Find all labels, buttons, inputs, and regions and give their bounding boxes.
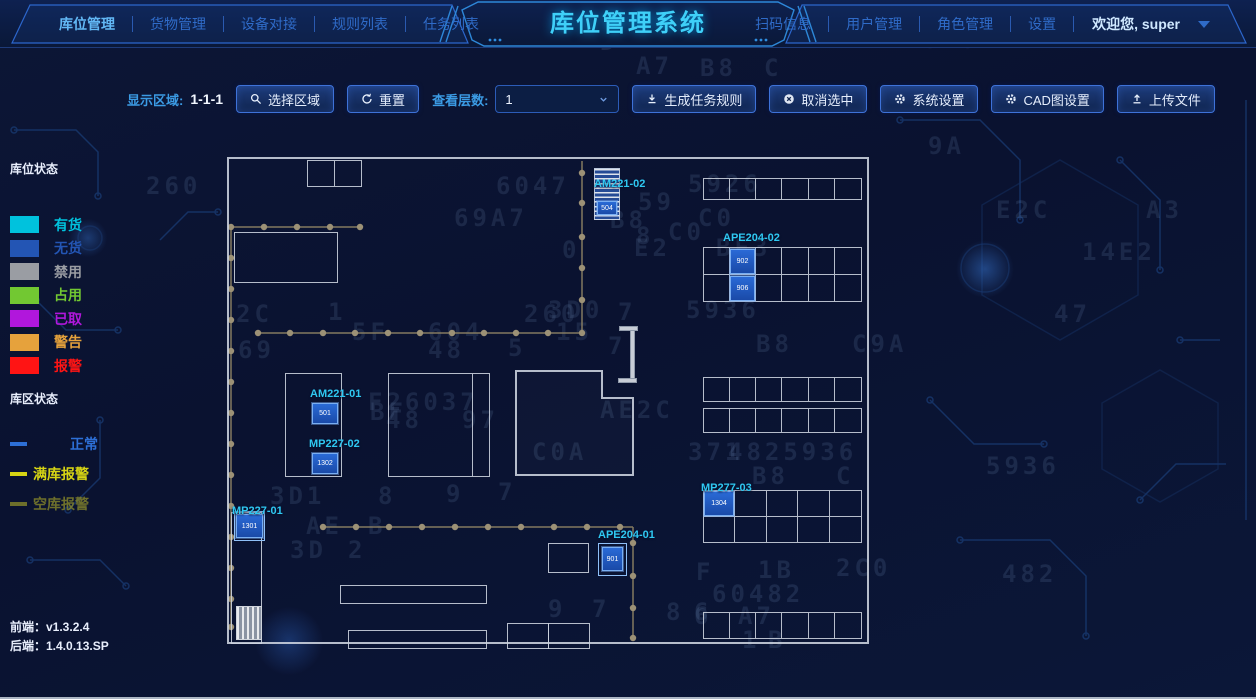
display-area-label: 显示区域:: [127, 90, 183, 109]
rack-cell[interactable]: [835, 248, 861, 275]
display-area-value: 1-1-1: [190, 91, 223, 107]
legend-line-swatch: [10, 502, 27, 506]
legend-item-has-goods: 有货: [10, 213, 98, 237]
background-hex-text: E2C: [996, 196, 1051, 224]
tab-scan-info[interactable]: 扫码信息: [738, 14, 828, 34]
slot-cell-902[interactable]: 902: [730, 249, 755, 274]
rack-cell[interactable]: [756, 179, 782, 199]
rack-cell[interactable]: [835, 613, 861, 638]
zone-status-title: 库区状态: [10, 390, 98, 407]
legend-item-no-goods: 无货: [10, 237, 98, 261]
room-upper-left: [234, 232, 338, 283]
station-label-mp227-01: MP227-01: [232, 505, 283, 517]
column-cap-top: [619, 326, 638, 331]
version-info: 前端：v1.3.2.4 后端：1.4.0.13.SP: [10, 618, 109, 656]
legend-line-swatch: [10, 472, 27, 476]
legend-item-taken: 已取: [10, 307, 98, 331]
slot-cell-504[interactable]: 504: [597, 201, 617, 215]
legend-label: 报警: [54, 356, 82, 376]
rack-cell[interactable]: [730, 179, 756, 199]
station-label-am221-01: AM221-01: [310, 388, 361, 400]
rack-cell[interactable]: [835, 378, 861, 401]
small-room-3: [548, 623, 590, 649]
app-header: 库位管理 货物管理 设备对接 规则列表 任务列表 库位管理系统 扫码信息 用户管…: [0, 0, 1256, 48]
rack-cell[interactable]: [767, 517, 798, 543]
legend-label: 警告: [54, 332, 82, 352]
rack-bottom-right-row: [703, 612, 862, 639]
slot-cell-1304[interactable]: 1304: [704, 491, 734, 516]
rack-cell[interactable]: [782, 179, 808, 199]
rack-cell[interactable]: [835, 275, 861, 302]
backend-version: 后端：1.4.0.13.SP: [10, 637, 109, 656]
rack-cell[interactable]: [308, 161, 335, 186]
station-label-ape204-02: APE204-02: [723, 232, 780, 244]
rack-cell[interactable]: [830, 517, 861, 543]
bench-long-2: [348, 630, 487, 649]
small-room-2: [507, 623, 549, 649]
upload-icon: [1131, 93, 1143, 105]
legend-item-occupied: 占用: [10, 284, 98, 308]
legend-label: 无货: [54, 238, 82, 258]
rack-cell[interactable]: [704, 517, 735, 543]
bench-long-1: [340, 585, 487, 604]
generate-task-rules-button[interactable]: 生成任务规则: [632, 85, 756, 113]
cad-settings-button[interactable]: CAD图设置: [991, 85, 1103, 113]
rack-cell[interactable]: [730, 378, 756, 401]
rack-ape204-02: [703, 247, 862, 302]
rack-cell[interactable]: [798, 517, 829, 543]
legend-label: 占用: [54, 285, 82, 305]
rack-cell[interactable]: [809, 613, 835, 638]
legend-swatch: [10, 357, 39, 374]
rack-cell[interactable]: [704, 409, 730, 432]
rack-mid-right-lower: [703, 408, 862, 433]
rack-cell[interactable]: [767, 491, 798, 517]
secondary-nav: 扫码信息 用户管理 角色管理 设置 欢迎您, super: [738, 0, 1210, 48]
legend-label: 已取: [54, 309, 82, 329]
rack-cell[interactable]: [735, 517, 766, 543]
legend-swatch: [10, 240, 39, 257]
gear-icon: [894, 93, 906, 105]
layers-select-value: 1: [505, 92, 512, 107]
background-hex-text: C: [764, 54, 782, 82]
rack-cell[interactable]: [704, 248, 730, 275]
rack-cell[interactable]: [782, 248, 808, 275]
select-area-button[interactable]: 选择区域: [236, 85, 334, 113]
gear-icon: [1005, 93, 1017, 105]
rack-cell[interactable]: [756, 275, 782, 302]
rack-cell[interactable]: [782, 613, 808, 638]
legend-item-zone-normal: 正常: [10, 429, 98, 459]
tab-user-management[interactable]: 用户管理: [829, 14, 919, 34]
welcome-user-text: 欢迎您, super: [1074, 14, 1190, 34]
chevron-down-icon: [598, 94, 609, 105]
slot-cell-1302[interactable]: 1302: [312, 453, 338, 474]
station-label-ape204-01: APE204-01: [598, 529, 655, 541]
slot-cell-1301[interactable]: 1301: [236, 514, 263, 538]
legend-label: 空库报警: [33, 494, 89, 514]
cancel-circle-icon: [783, 93, 795, 105]
slot-cell-501[interactable]: 501: [312, 403, 338, 424]
slot-status-title: 库位状态: [10, 160, 98, 177]
background-hex-text: A7: [636, 52, 673, 80]
legend-label: 有货: [54, 215, 82, 235]
rack-cell[interactable]: [704, 378, 730, 401]
background-hex-text: A3: [1146, 196, 1183, 224]
download-icon: [646, 93, 658, 105]
tab-goods-management[interactable]: 货物管理: [133, 14, 223, 34]
legend-item-zone-empty-alarm: 空库报警: [10, 489, 98, 519]
slot-cell-906[interactable]: 906: [730, 276, 755, 301]
rack-cell[interactable]: [835, 179, 861, 199]
station-label-mp227-02: MP227-02: [309, 438, 360, 450]
room-center: [388, 373, 490, 477]
legend-item-zone-full-alarm: 满库报警: [10, 459, 98, 489]
legend-swatch: [10, 263, 39, 280]
rack-cell[interactable]: [756, 248, 782, 275]
rack-cell[interactable]: [704, 275, 730, 302]
layers-select[interactable]: 1: [495, 85, 619, 113]
legend-swatch: [10, 310, 39, 327]
reset-button[interactable]: 重置: [347, 85, 419, 113]
rack-cell[interactable]: [735, 491, 766, 517]
rack-cell[interactable]: [809, 275, 835, 302]
user-menu-caret-icon[interactable]: [1198, 21, 1210, 28]
rack-cell[interactable]: [809, 179, 835, 199]
legend-item-warning: 警告: [10, 331, 98, 355]
system-settings-button[interactable]: 系统设置: [880, 85, 978, 113]
tab-rule-list[interactable]: 规则列表: [315, 14, 405, 34]
rack-cell[interactable]: [809, 248, 835, 275]
rack-cell[interactable]: [782, 378, 808, 401]
rack-cell[interactable]: [782, 409, 808, 432]
status-legend: 库位状态 有货 无货 禁用 占用 已取 警告 报警 库区状态 正常 满库报警: [10, 160, 98, 519]
rack-cell[interactable]: [830, 491, 861, 517]
rack-cell[interactable]: [756, 613, 782, 638]
legend-item-alarm: 报警: [10, 354, 98, 378]
background-hex-text: 9A: [928, 132, 965, 160]
legend-label: 禁用: [54, 262, 82, 282]
small-room-1: [548, 543, 589, 573]
rack-top-right-row: [703, 178, 862, 200]
legend-item-disabled: 禁用: [10, 260, 98, 284]
station-label-mp277-03: MP277-03: [701, 482, 752, 494]
legend-line-swatch: [10, 442, 27, 446]
background-hex-text: B8: [700, 54, 737, 82]
rack-cell[interactable]: [756, 409, 782, 432]
cancel-selection-button[interactable]: 取消选中: [769, 85, 867, 113]
rack-cell[interactable]: [782, 275, 808, 302]
rack-cell[interactable]: [730, 613, 756, 638]
upload-file-button[interactable]: 上传文件: [1117, 85, 1215, 113]
background-hex-text: 47: [1054, 300, 1091, 328]
rack-top-left-double: [307, 160, 362, 187]
warehouse-floorplan[interactable]: AM221-02 504 APE204-02 902 906 MP277-03 …: [227, 157, 871, 649]
station-label-am221-02: AM221-02: [594, 178, 645, 190]
background-hex-text: 5936: [986, 452, 1060, 480]
rack-cell[interactable]: [809, 378, 835, 401]
rack-cell[interactable]: [809, 409, 835, 432]
column-cap-bottom: [618, 378, 637, 383]
view-layers-label: 查看层数:: [432, 90, 488, 109]
rack-cell[interactable]: [798, 491, 829, 517]
background-hex-text: 14E2: [1082, 238, 1156, 266]
tab-slot-management[interactable]: 库位管理: [42, 14, 132, 34]
rack-cell[interactable]: [730, 409, 756, 432]
map-toolbar: 显示区域: 1-1-1 选择区域 重置 查看层数: 1 生成任务规则 取消选中 …: [127, 85, 1215, 113]
glow-decor: [952, 236, 1018, 302]
hatched-block: [236, 606, 262, 640]
legend-swatch: [10, 334, 39, 351]
tab-device-docking[interactable]: 设备对接: [224, 14, 314, 34]
rack-cell[interactable]: [704, 179, 730, 199]
refresh-icon: [361, 93, 373, 105]
rack-cell[interactable]: [704, 613, 730, 638]
legend-label: 满库报警: [33, 464, 89, 484]
background-hex-text: 482: [1002, 560, 1057, 588]
column-bar: [630, 330, 635, 379]
rack-mid-right-upper: [703, 377, 862, 402]
primary-nav: 库位管理 货物管理 设备对接 规则列表 任务列表: [42, 0, 496, 48]
rack-cell[interactable]: [335, 161, 362, 186]
background-hex-text: 260: [146, 172, 201, 200]
rack-cell[interactable]: [756, 378, 782, 401]
search-icon: [250, 93, 262, 105]
rack-cell[interactable]: [835, 409, 861, 432]
slot-cell-901[interactable]: 901: [602, 547, 623, 571]
tab-role-management[interactable]: 角色管理: [920, 14, 1010, 34]
room-divider: [472, 374, 473, 476]
legend-label: 正常: [70, 434, 98, 454]
legend-swatch: [10, 287, 39, 304]
legend-swatch: [10, 216, 39, 233]
frontend-version: 前端：v1.3.2.4: [10, 618, 109, 637]
tab-settings[interactable]: 设置: [1011, 14, 1073, 34]
